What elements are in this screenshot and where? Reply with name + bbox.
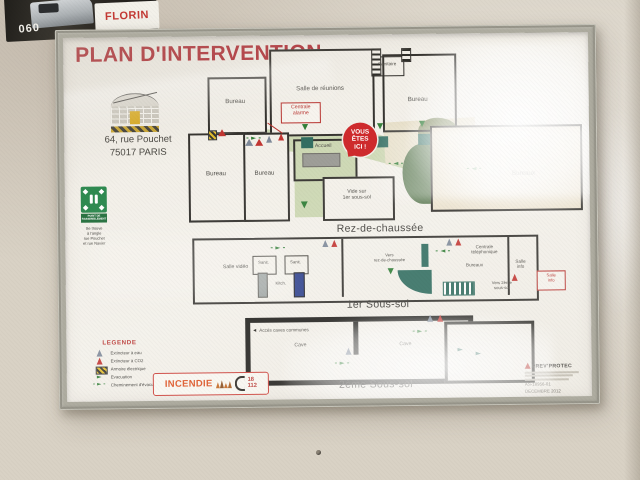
label-acces-caves: Accès caves communes xyxy=(259,327,351,333)
ground-floor-plan: Bureau Salle de réunions Sanitaire Burea… xyxy=(187,36,581,220)
label-centrale-telephonique: Centrale téléphonique xyxy=(449,244,519,256)
evac-route-arrow-icon xyxy=(412,328,427,335)
room-label-salle-reunions: Salle de réunions xyxy=(270,85,371,93)
publisher-date: DECEMBRE 2012 xyxy=(525,388,587,395)
evac-exit-arrow-icon xyxy=(301,201,308,210)
fire-emergency-box: INCENDIE 18 112 xyxy=(153,372,269,396)
door-mark-icon xyxy=(418,134,430,145)
room-label-bureau-tl: Bureau xyxy=(208,98,263,106)
logo-base-hatching xyxy=(111,126,159,133)
ground-floor-caption: Rez-de-chaussée xyxy=(320,222,440,235)
exit-corridor xyxy=(295,185,323,217)
room-label-bureau-bl1: Bureau xyxy=(188,170,243,178)
water-extinguisher-icon xyxy=(266,136,272,143)
water-extinguisher-icon xyxy=(345,348,351,355)
basement2-plan: Accès caves communes Cave Cave xyxy=(245,315,474,386)
publisher-fineprint xyxy=(525,374,573,377)
legend-item-label: Extincteur à eau xyxy=(111,350,142,355)
co2-extinguisher-icon xyxy=(218,129,226,136)
vide-line: 1er sous-sol xyxy=(325,194,389,201)
wall-screw xyxy=(316,450,321,455)
basement2-caption: 2ème Sous-sol xyxy=(321,378,431,391)
publisher-fineprint xyxy=(525,371,579,374)
label-vers-rdc: Vers rez-de-chaussée xyxy=(359,253,419,264)
publisher-fineprint xyxy=(525,378,569,380)
room-label-sanitaire: Sanitaire xyxy=(370,61,404,67)
water-extinguisher-icon xyxy=(245,139,253,146)
phone-icon xyxy=(235,376,245,391)
spiral-stairs-icon xyxy=(398,270,432,294)
wall-light-reflection xyxy=(596,100,640,320)
stairs-hatch-icon xyxy=(401,48,411,62)
legend-item-label: Armoire électrique xyxy=(111,366,146,371)
evac-route-arrow-icon xyxy=(335,360,350,367)
door-mark-icon xyxy=(421,244,428,267)
publisher-logo-icon xyxy=(525,363,531,369)
photo-of-intervention-plan: { "colors": { "accent_red": "#b8322e", "… xyxy=(0,0,640,480)
legend-water-extinguisher-icon xyxy=(96,350,102,357)
address-line-1: 64, rue Pouchet xyxy=(86,134,190,146)
label-bureaux-b1: Bureaux xyxy=(445,262,505,268)
wall xyxy=(353,322,358,355)
building-logo xyxy=(111,93,159,133)
sticker-brand-label: FLORIN xyxy=(105,9,149,23)
fire-number-112: 112 xyxy=(248,383,257,389)
evac-arrow-down-icon xyxy=(377,122,383,130)
basement1-caption: 1er Sous-sol xyxy=(328,298,428,311)
room-label-salle-info: Salle info xyxy=(508,259,532,270)
vers-line: rez-de-chaussée xyxy=(359,258,419,264)
assembly-point-icon xyxy=(81,187,107,213)
evac-arrow-down-icon xyxy=(388,267,394,275)
wall xyxy=(341,239,344,297)
evac-arrow-down-icon xyxy=(419,120,425,128)
water-extinguisher-icon xyxy=(427,315,433,322)
sticker-brand-card: FLORIN xyxy=(94,1,159,32)
fire-label: INCENDIE xyxy=(165,378,213,390)
co2-extinguisher-icon xyxy=(331,240,337,247)
electrical-cabinet-icon xyxy=(208,130,217,140)
basement2-annex xyxy=(444,321,535,384)
label-vers-b2: Vers 2ème sous-sol xyxy=(473,281,531,292)
stair-gray xyxy=(258,273,268,298)
basement1-plan: Salle vidéo Sanit. Sanit. Kitch. Vers re… xyxy=(192,235,539,305)
intervention-plan-poster: PLAN D'INTERVENTION 64, rue Pouchet 7501… xyxy=(63,32,592,402)
vb2-line: sous-sol xyxy=(473,286,531,292)
alarm-line: alarme xyxy=(282,111,320,117)
note-line: et rue Navier xyxy=(74,241,114,247)
sticker-number: 060 xyxy=(18,22,40,36)
salle-info-callout: Salle info xyxy=(537,270,566,290)
room-label-vide: Vide sur 1er sous-sol xyxy=(325,188,389,201)
evac-route-arrow-icon xyxy=(435,248,450,255)
stairs-down-icon xyxy=(443,281,475,295)
legend-item-label: Evacuation xyxy=(111,374,132,379)
assembly-point-label: Point de rassemblement xyxy=(81,214,107,223)
legend-co2-extinguisher-icon xyxy=(97,358,103,365)
callout-line: info xyxy=(538,278,565,283)
flames-icon xyxy=(216,375,232,393)
van-window xyxy=(38,3,58,13)
room-label-sanit1: Sanit. xyxy=(252,261,274,266)
exit-arrow-left-icon xyxy=(252,329,257,334)
legend-title: LEGENDE xyxy=(102,339,136,346)
publisher-block: PREV'PROTEC AS-18956-01 DECEMBRE 2012 xyxy=(525,362,587,394)
room-label-bureaux-right: Bureaux xyxy=(483,169,563,177)
si-line: info xyxy=(509,264,533,270)
room-label-cave-1: Cave xyxy=(270,342,330,349)
ct-line: téléphonique xyxy=(449,249,519,255)
evac-route-arrow-icon xyxy=(270,244,285,251)
legend-route-arrow-icon xyxy=(93,383,106,389)
picture-frame: PLAN D'INTERVENTION 64, rue Pouchet 7501… xyxy=(55,24,600,410)
alarm-callout: Centrale alarme xyxy=(281,102,321,123)
address-line-2: 75017 PARIS xyxy=(86,147,190,159)
reception-desk xyxy=(302,153,340,167)
emergency-numbers: 18 112 xyxy=(248,378,257,390)
co2-extinguisher-icon xyxy=(512,274,518,281)
room-label-bureau-bl2: Bureau xyxy=(243,169,285,177)
evac-route-arrow-icon xyxy=(466,165,481,172)
logo-door xyxy=(130,111,140,124)
door-mark-icon xyxy=(376,136,388,147)
evac-arrow-down-icon xyxy=(302,123,308,131)
co2-extinguisher-icon xyxy=(437,315,443,322)
evac-route-arrow-icon xyxy=(476,350,481,357)
legend-evac-arrow-icon xyxy=(97,375,102,381)
legend-item-label: Extincteur à CO2 xyxy=(111,358,144,363)
evac-route-arrow-icon xyxy=(457,346,462,353)
room-label-cave-2: Cave xyxy=(375,341,435,348)
assembly-point-note: Se trouve à l'angle rue Pouchet et rue N… xyxy=(74,225,114,246)
publisher-name-text: PREV'PROTEC xyxy=(532,363,572,369)
room-label-kitch: Kitch. xyxy=(269,281,293,286)
water-extinguisher-icon xyxy=(322,240,328,247)
yah-line: ICI ! xyxy=(354,143,366,150)
room-bureaux-right xyxy=(430,124,583,212)
co2-extinguisher-icon xyxy=(278,133,284,140)
publisher-name: PREV'PROTEC xyxy=(525,362,587,370)
stair-blue xyxy=(294,272,305,297)
evac-route-arrow-icon xyxy=(388,160,403,167)
room-label-sanit2: Sanit. xyxy=(284,260,306,265)
room-label-bureau-tr: Bureau xyxy=(383,96,453,104)
co2-extinguisher-icon xyxy=(255,139,263,146)
